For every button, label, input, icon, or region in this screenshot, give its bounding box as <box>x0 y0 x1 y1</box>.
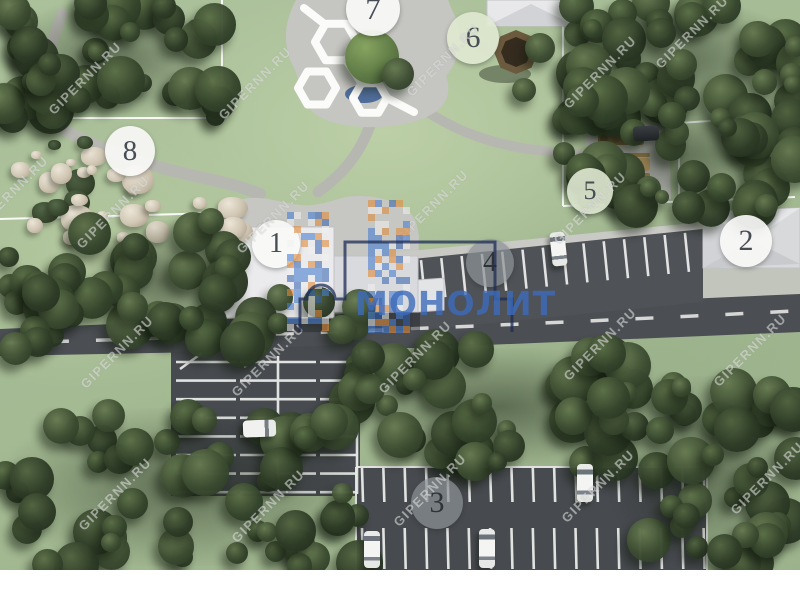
map-marker-8: 8 <box>105 126 155 176</box>
map-marker-7: 7 <box>346 0 400 36</box>
marker-number: 7 <box>365 0 381 27</box>
marker-number: 8 <box>123 135 138 168</box>
map-marker-2: 2 <box>720 215 772 267</box>
map-marker-5: 5 <box>567 168 613 214</box>
map-marker-4: 4 <box>466 239 514 287</box>
markers-layer: 12345678 <box>0 0 800 600</box>
bottom-whitespace <box>0 570 800 600</box>
marker-number: 4 <box>483 247 497 279</box>
marker-number: 6 <box>466 21 481 55</box>
marker-number: 1 <box>269 228 283 260</box>
map-marker-6: 6 <box>447 12 499 64</box>
marker-number: 3 <box>430 486 445 520</box>
marker-number: 5 <box>584 176 597 206</box>
site-plan-render: 12345678 GIPERNN.RUGIPERNN.RUGIPERNN.RUG… <box>0 0 800 600</box>
map-marker-3: 3 <box>411 477 463 529</box>
marker-number: 2 <box>739 224 754 258</box>
map-marker-1: 1 <box>252 220 300 268</box>
